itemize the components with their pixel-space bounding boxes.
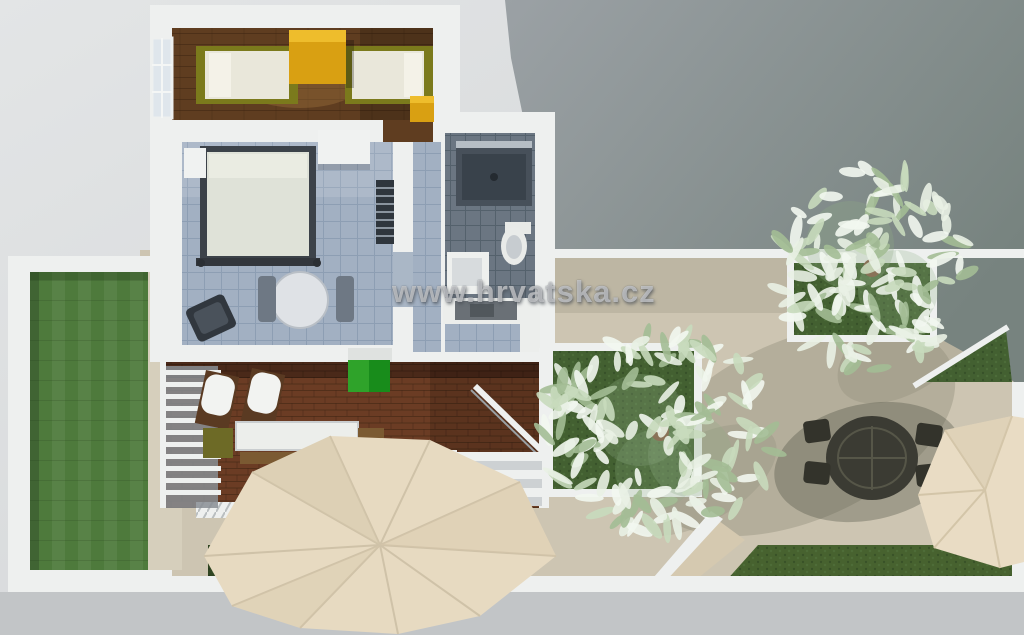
scene bbox=[0, 0, 1024, 635]
lawn-texture bbox=[30, 272, 148, 570]
dining-table-round bbox=[258, 272, 354, 328]
shower-drain bbox=[490, 173, 498, 181]
chair bbox=[336, 276, 354, 322]
wardrobe-yellow bbox=[289, 30, 354, 88]
pillows bbox=[209, 154, 307, 178]
pillow bbox=[209, 53, 231, 97]
garden-chair bbox=[803, 418, 832, 443]
lawn-wall-shadow-top bbox=[30, 272, 148, 280]
bed-single-left bbox=[196, 46, 298, 104]
garden-chair bbox=[915, 422, 944, 447]
bench bbox=[203, 428, 233, 458]
bed-single-right bbox=[345, 46, 433, 104]
bedroom-2 bbox=[182, 130, 413, 345]
garden-chair bbox=[803, 461, 831, 486]
floorplan-render: www.hrvatska.cz bbox=[0, 0, 1024, 635]
chair bbox=[258, 276, 276, 322]
lawn-wall-shadow bbox=[30, 272, 39, 570]
footboard bbox=[196, 258, 320, 266]
shower bbox=[456, 141, 532, 206]
dresser bbox=[318, 130, 370, 164]
terrace-door-threshold bbox=[348, 348, 392, 362]
nightstand bbox=[184, 148, 206, 178]
door-mat bbox=[348, 360, 390, 392]
double-bed bbox=[196, 146, 321, 267]
street-paving bbox=[0, 592, 1024, 635]
shower-door-rail bbox=[456, 141, 532, 148]
pillow bbox=[404, 53, 422, 97]
yellow-cabinet bbox=[410, 96, 434, 122]
interior-wall bbox=[393, 142, 413, 345]
watermark: www.hrvatska.cz bbox=[392, 274, 656, 310]
radiator bbox=[376, 180, 394, 244]
